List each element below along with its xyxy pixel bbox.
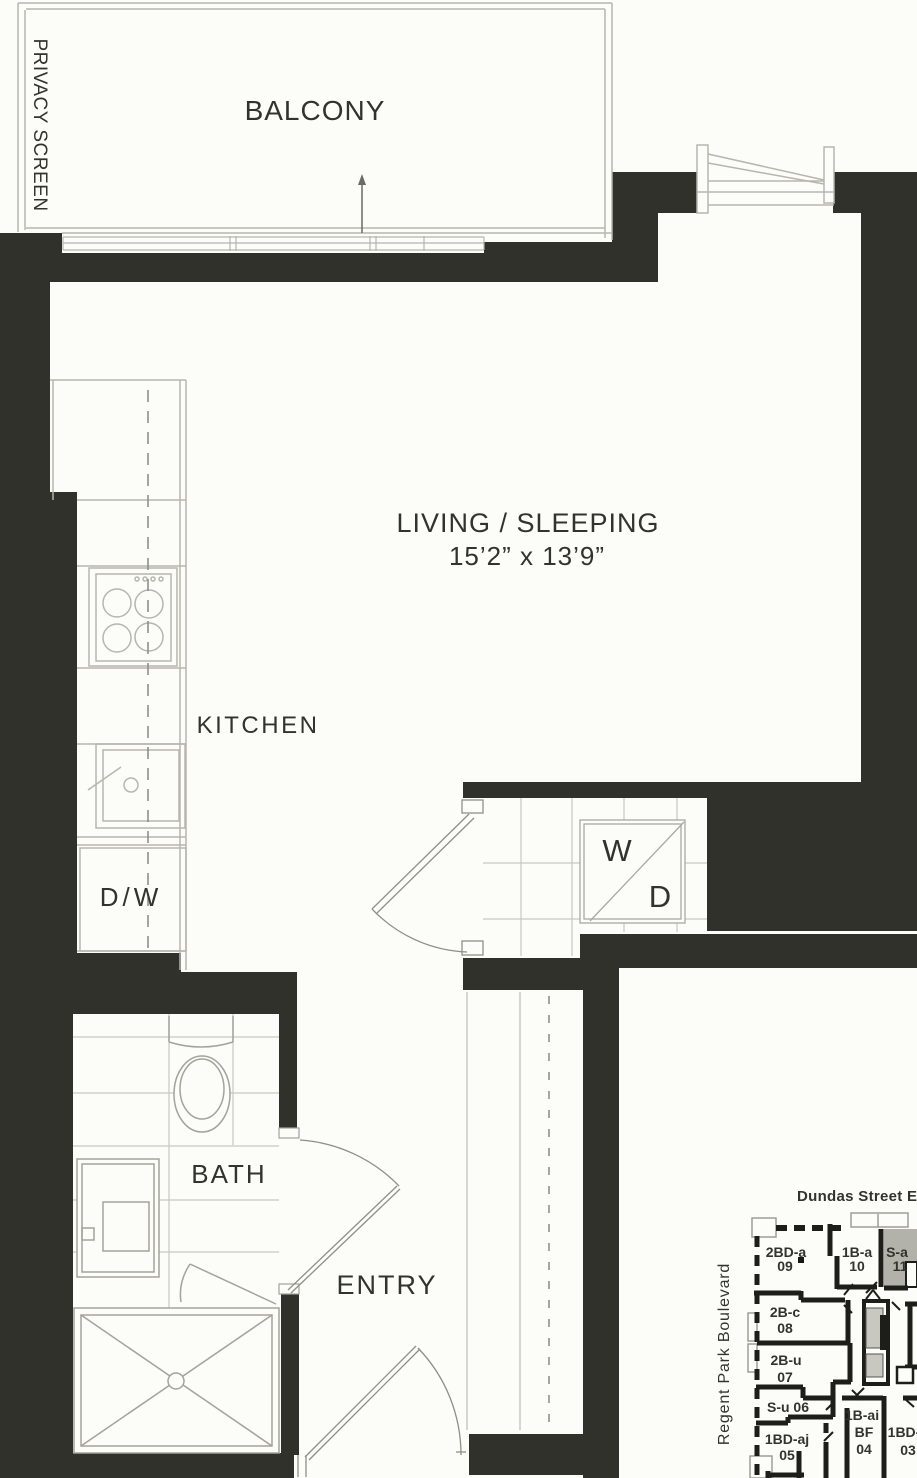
svg-text:04: 04 — [856, 1441, 872, 1457]
svg-text:PRIVACY SCREEN: PRIVACY SCREEN — [29, 38, 50, 211]
svg-text:Dundas Street E: Dundas Street E — [797, 1188, 917, 1205]
svg-text:KITCHEN: KITCHEN — [197, 712, 320, 739]
svg-text:11: 11 — [893, 1258, 908, 1274]
svg-text:09: 09 — [777, 1258, 793, 1274]
svg-text:1BD-: 1BD- — [888, 1424, 917, 1440]
svg-text:W: W — [602, 833, 632, 868]
svg-text:BF: BF — [855, 1424, 874, 1440]
svg-text:Regent Park Boulevard: Regent Park Boulevard — [716, 1263, 733, 1445]
svg-text:05: 05 — [779, 1447, 795, 1463]
svg-text:1BD-aj: 1BD-aj — [765, 1431, 809, 1447]
svg-text:03: 03 — [900, 1442, 916, 1458]
svg-text:08: 08 — [777, 1320, 793, 1336]
svg-text:S-u 06: S-u 06 — [767, 1399, 809, 1415]
svg-text:2B-c: 2B-c — [770, 1304, 801, 1320]
svg-text:BALCONY: BALCONY — [245, 95, 386, 126]
svg-text:LIVING / SLEEPING: LIVING / SLEEPING — [396, 508, 659, 538]
svg-text:1B-ai: 1B-ai — [845, 1407, 879, 1423]
svg-text:D/W: D/W — [100, 882, 163, 912]
svg-text:D: D — [649, 879, 671, 914]
svg-text:15’2” x 13’9”: 15’2” x 13’9” — [449, 541, 605, 571]
svg-text:BATH: BATH — [191, 1159, 266, 1189]
svg-text:ENTRY: ENTRY — [336, 1270, 437, 1300]
svg-text:2B-u: 2B-u — [770, 1352, 801, 1368]
svg-text:10: 10 — [849, 1258, 865, 1274]
svg-text:07: 07 — [777, 1369, 793, 1385]
